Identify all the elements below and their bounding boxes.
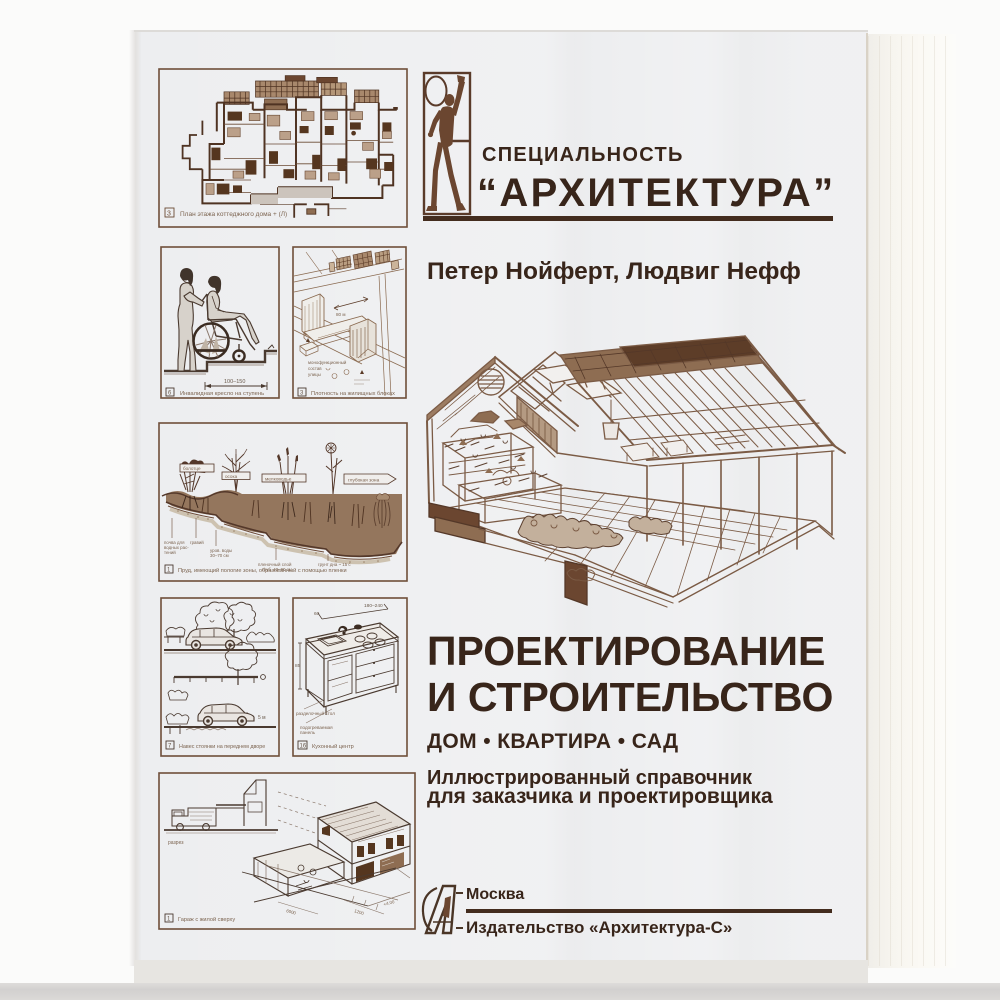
svg-text:100–150: 100–150 [224, 379, 245, 385]
svg-text:разрез: разрез [168, 840, 184, 846]
svg-text:3: 3 [167, 211, 171, 218]
svg-text:85: 85 [295, 663, 301, 669]
svg-text:состав: состав [308, 366, 322, 371]
svg-text:Кухонный центр: Кухонный центр [312, 743, 354, 750]
svg-text:панель: панель [300, 730, 316, 735]
svg-text:разделочный стол: разделочный стол [296, 710, 335, 716]
svg-text:Гараж с жилой сверху: Гараж с жилой сверху [178, 916, 235, 923]
svg-text:16: 16 [300, 744, 307, 750]
svg-text:30–70 см: 30–70 см [210, 553, 229, 558]
svg-text:грунт дна ~ 15 с: грунт дна ~ 15 с [318, 562, 351, 567]
svg-text:улицы: улицы [308, 372, 321, 377]
svg-text:180–240: 180–240 [364, 603, 383, 609]
svg-text:тений: тений [164, 550, 176, 555]
svg-text:План этажа коттеджного дома +: План этажа коттеджного дома + (Л) [180, 211, 287, 218]
svg-text:1200: 1200 [354, 908, 365, 916]
svg-text:60: 60 [314, 611, 320, 617]
svg-text:80 м: 80 м [336, 312, 346, 317]
svg-text:осока: осока [225, 474, 238, 479]
svg-text:болотце: болотце [183, 466, 201, 471]
svg-text:монофункционный: монофункционный [308, 360, 347, 365]
svg-text:Навес стоянки на переднем двор: Навес стоянки на переднем дворе [179, 744, 265, 750]
svg-text:5 м: 5 м [258, 715, 266, 721]
svg-text:Плотность на жилищных блоках: Плотность на жилищных блоках [311, 391, 395, 397]
svg-text:Инвалидная кресло на ступень: Инвалидная кресло на ступень [180, 391, 264, 397]
svg-text:6000: 6000 [286, 908, 297, 916]
svg-text:мелководье: мелководье [265, 478, 292, 483]
svg-text:гравий: гравий [190, 540, 204, 545]
svg-text:глубокая зона: глубокая зона [348, 478, 380, 484]
svg-text:Пруд, имеющий пологие зоны, об: Пруд, имеющий пологие зоны, образованный… [178, 567, 347, 574]
